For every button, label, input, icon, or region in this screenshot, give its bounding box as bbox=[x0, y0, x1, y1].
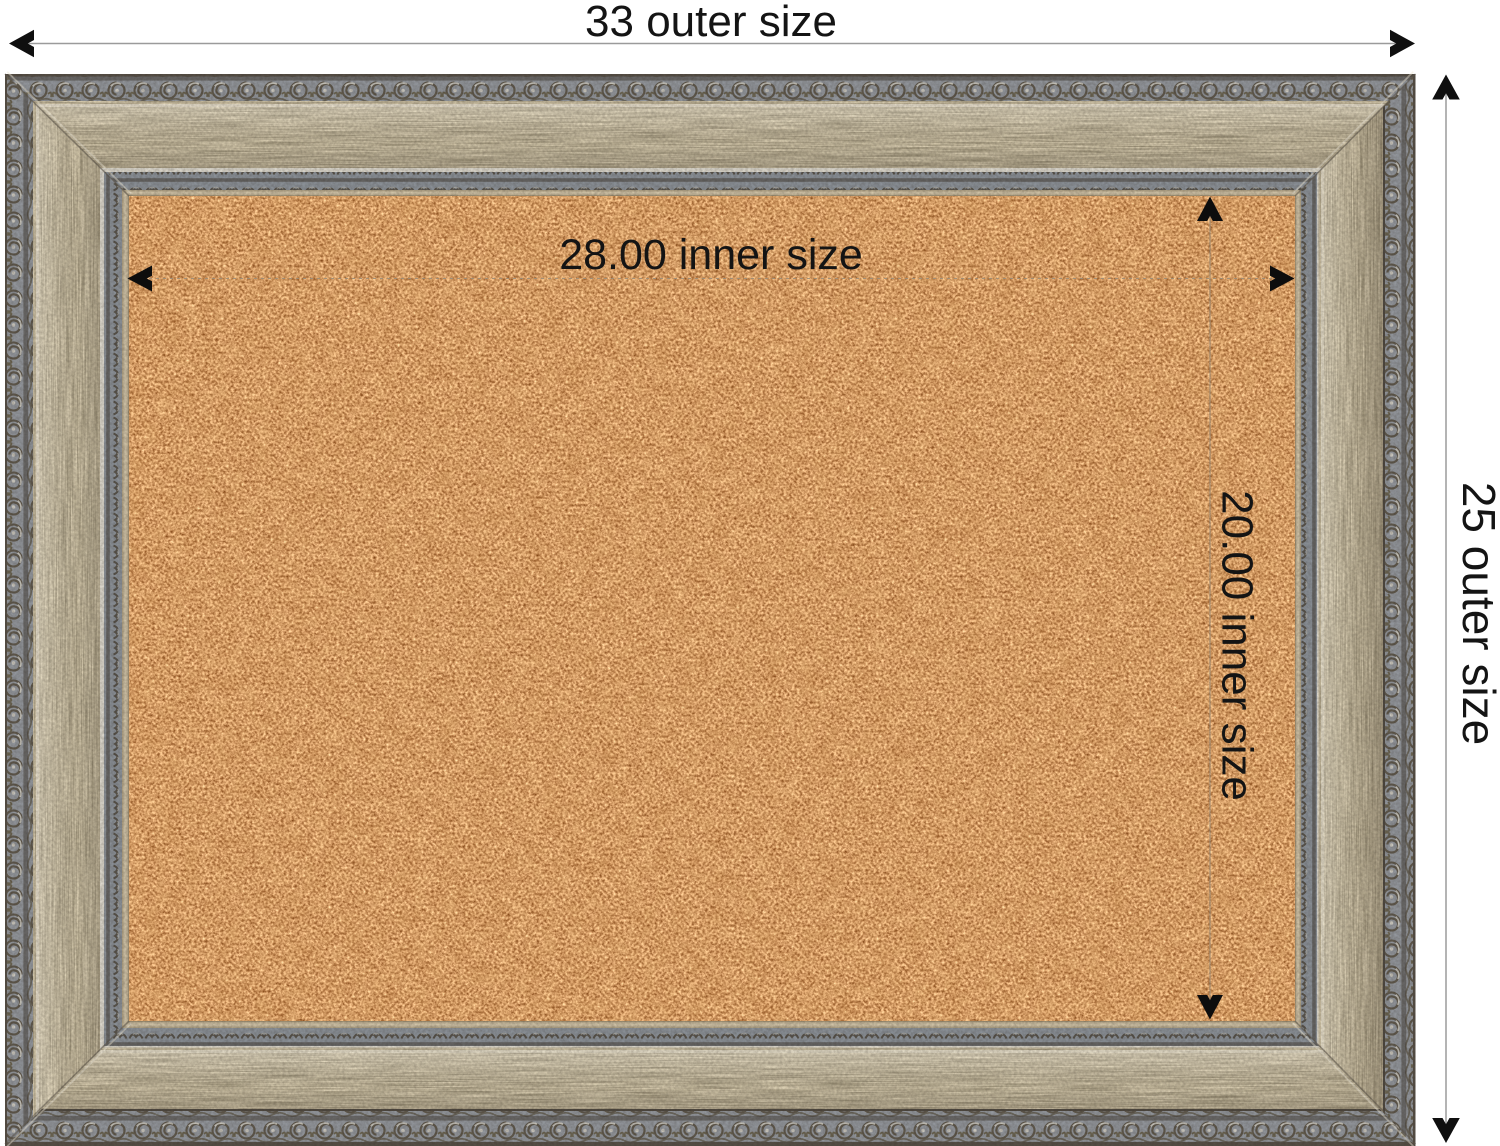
svg-text:33 outer size: 33 outer size bbox=[585, 0, 837, 46]
svg-text:28.00 inner size: 28.00 inner size bbox=[559, 231, 863, 279]
svg-text:25 outer size: 25 outer size bbox=[1453, 482, 1500, 745]
svg-text:20.00 inner size: 20.00 inner size bbox=[1213, 490, 1262, 801]
